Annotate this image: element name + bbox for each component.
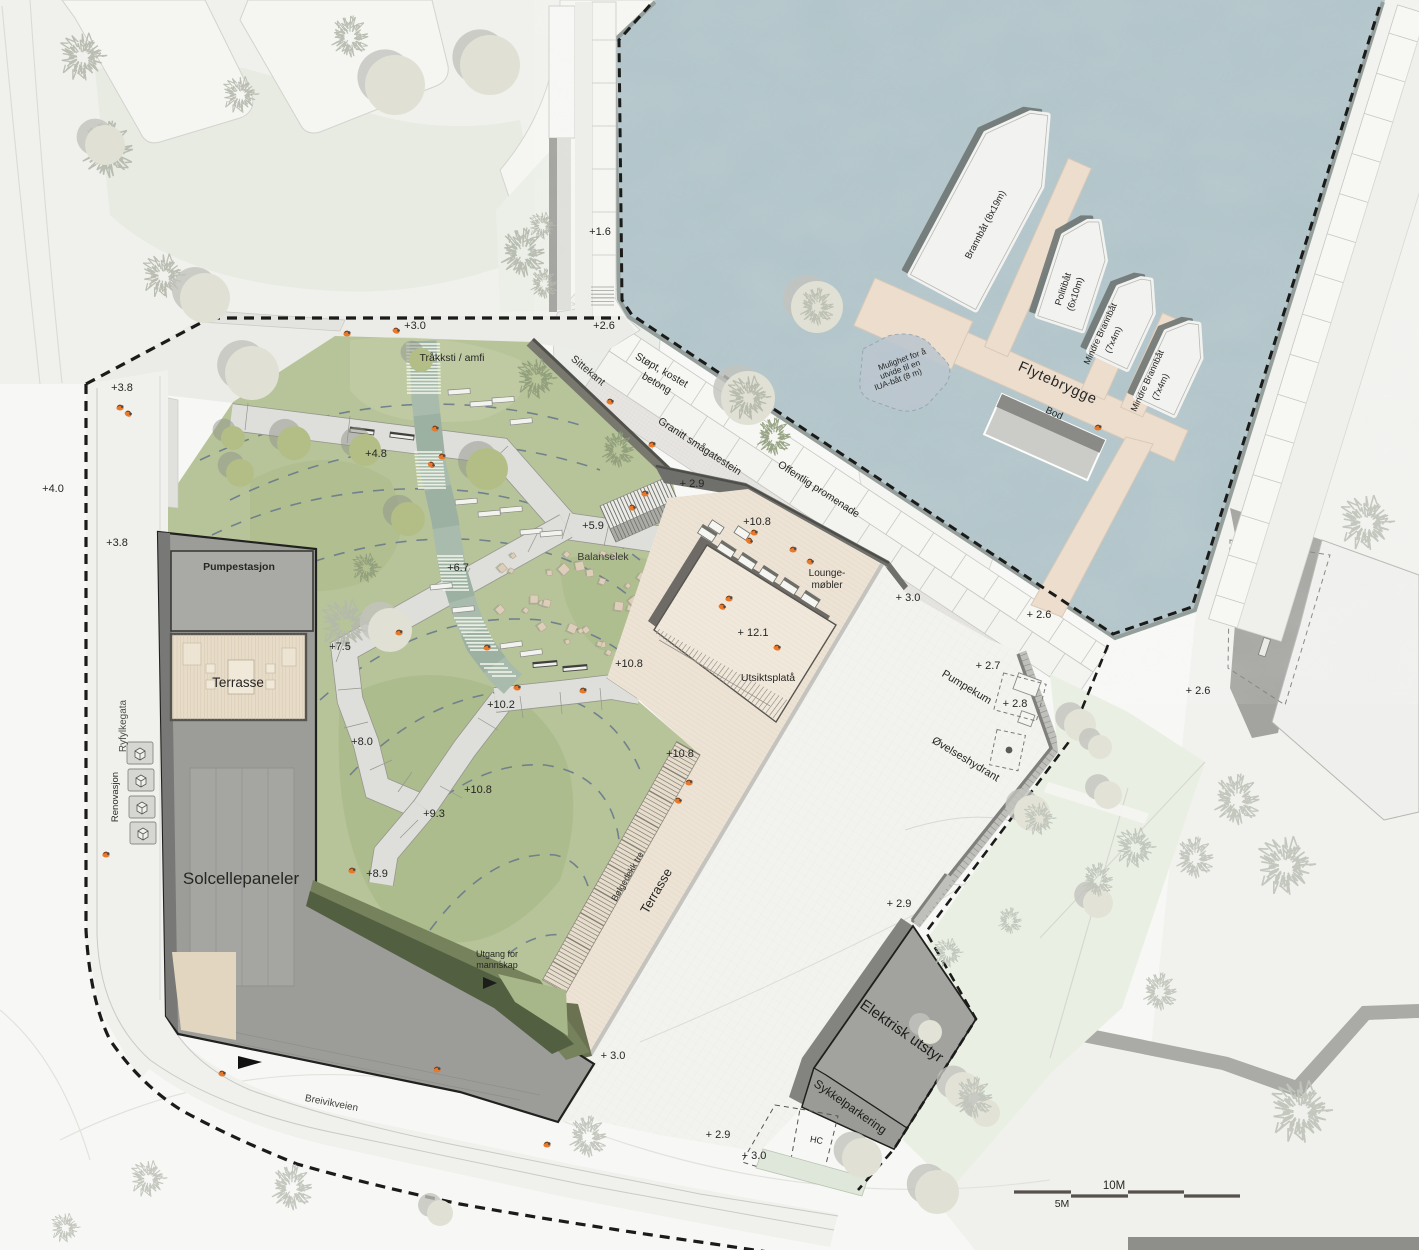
svg-text:Balanselek: Balanselek <box>577 551 629 563</box>
svg-text:+ 2.9: + 2.9 <box>887 898 912 910</box>
svg-text:+ 2.7: + 2.7 <box>976 660 1001 672</box>
svg-text:+3.0: +3.0 <box>404 320 426 332</box>
svg-text:+2.6: +2.6 <box>593 320 615 332</box>
svg-text:5M: 5M <box>1055 1198 1070 1210</box>
svg-text:+10.8: +10.8 <box>743 516 771 528</box>
svg-text:Ryfylkegata: Ryfylkegata <box>118 699 129 752</box>
svg-text:Renovasjon: Renovasjon <box>110 772 121 822</box>
svg-text:+ 2.8: + 2.8 <box>1003 698 1028 710</box>
svg-text:+10.8: +10.8 <box>464 784 492 796</box>
svg-text:+4.0: +4.0 <box>42 483 64 495</box>
svg-text:+8.9: +8.9 <box>366 868 388 880</box>
svg-text:Lounge-: Lounge- <box>809 568 846 579</box>
svg-text:mannskap: mannskap <box>476 960 518 970</box>
svg-text:Utsiktsplatå: Utsiktsplatå <box>741 672 795 684</box>
svg-text:+ 3.0: + 3.0 <box>896 592 921 604</box>
svg-text:+ 2.9: + 2.9 <box>680 478 705 490</box>
svg-text:10M: 10M <box>1103 1180 1125 1192</box>
svg-text:+7.5: +7.5 <box>329 641 351 653</box>
svg-text:+5.9: +5.9 <box>582 520 604 532</box>
svg-text:+ 3.0: + 3.0 <box>742 1150 767 1162</box>
svg-text:+3.8: +3.8 <box>111 382 133 394</box>
svg-text:Pumpestasjon: Pumpestasjon <box>203 561 275 573</box>
svg-text:Tråkksti / amfi: Tråkksti / amfi <box>420 352 485 364</box>
svg-text:+ 12.1: + 12.1 <box>738 627 769 639</box>
svg-text:Terrasse: Terrasse <box>212 675 264 690</box>
svg-text:Solcellepaneler: Solcellepaneler <box>183 869 300 888</box>
svg-text:+ 2.9: + 2.9 <box>706 1129 731 1141</box>
svg-text:møbler: møbler <box>811 580 843 591</box>
svg-text:+ 2.6: + 2.6 <box>1027 609 1052 621</box>
svg-text:+3.8: +3.8 <box>106 537 128 549</box>
svg-text:Utgang for: Utgang for <box>476 949 518 959</box>
svg-text:+10.8: +10.8 <box>615 658 643 670</box>
svg-text:+ 2.6: + 2.6 <box>1186 685 1211 697</box>
svg-text:+6.7: +6.7 <box>447 562 469 574</box>
svg-text:+9.3: +9.3 <box>423 808 445 820</box>
svg-text:+10.2: +10.2 <box>487 699 515 711</box>
svg-text:+ 3.0: + 3.0 <box>601 1050 626 1062</box>
svg-text:+10.8: +10.8 <box>666 748 694 760</box>
svg-text:+4.8: +4.8 <box>365 448 387 460</box>
svg-text:+8.0: +8.0 <box>351 736 373 748</box>
svg-text:+1.6: +1.6 <box>589 226 611 238</box>
